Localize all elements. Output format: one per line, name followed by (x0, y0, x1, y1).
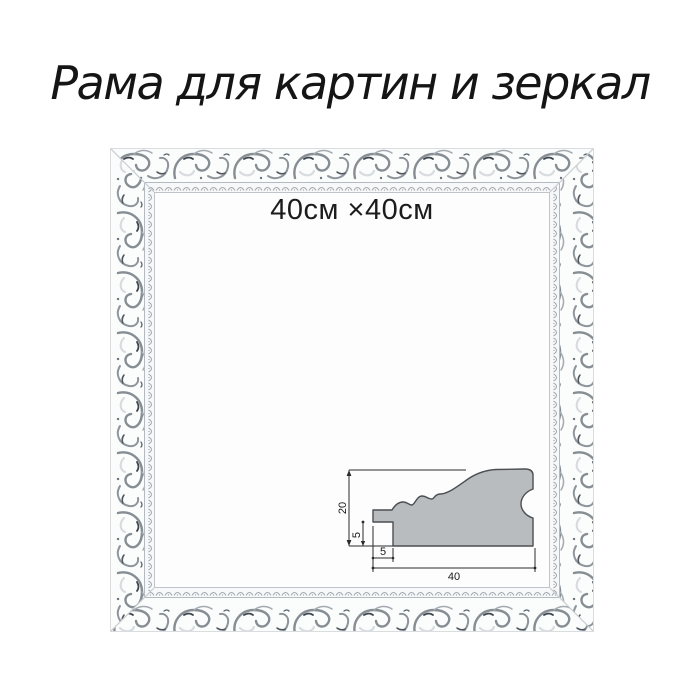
dim-label-height: 20 (337, 502, 349, 514)
product-image-canvas: { "title": "Рама для картин и зеркал", "… (0, 0, 700, 700)
frame-size-label: 40см ×40см (110, 194, 594, 227)
frame-band-bottom (110, 588, 594, 632)
dim-label-lip-width: 5 (380, 546, 386, 558)
moulding-profile-diagram: 20 5 5 40 (336, 458, 586, 593)
product-title: Рама для картин и зеркал (0, 56, 700, 111)
dim-label-rabbet-depth: 5 (351, 532, 363, 538)
dim-label-total-width: 40 (448, 571, 460, 583)
moulding-cross-section (373, 469, 533, 546)
frame-band-top (110, 148, 594, 192)
